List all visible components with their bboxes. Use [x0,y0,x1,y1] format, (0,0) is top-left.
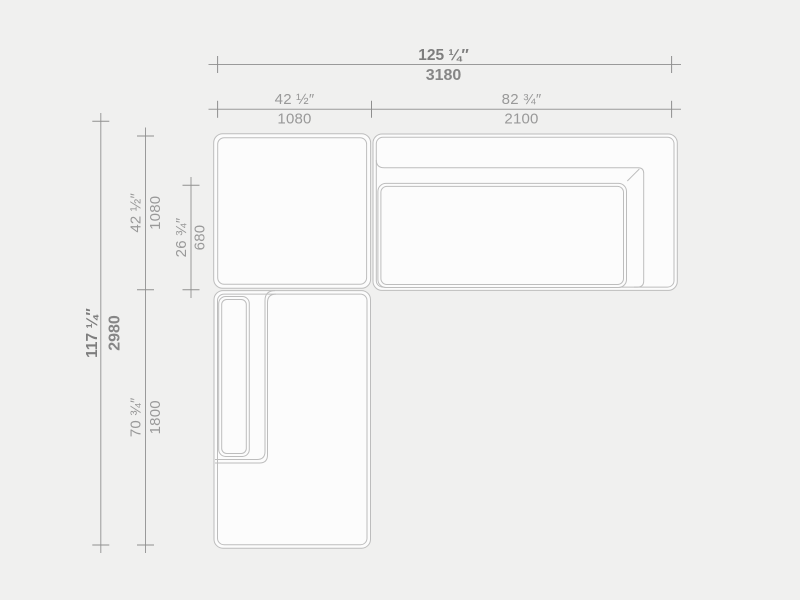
svg-text:42 ½″: 42 ½″ [275,91,315,108]
svg-text:3180: 3180 [426,67,462,84]
svg-text:1080: 1080 [277,111,311,128]
svg-text:2100: 2100 [504,111,538,128]
svg-text:680: 680 [192,225,209,251]
svg-text:125 ¼″: 125 ¼″ [418,47,469,64]
svg-text:117 ¼″: 117 ¼″ [84,308,101,358]
svg-text:1800: 1800 [147,400,164,434]
svg-text:26 ¾″: 26 ¾″ [173,217,190,257]
svg-text:42 ½″: 42 ½″ [128,192,145,232]
svg-text:70 ¾″: 70 ¾″ [128,397,145,437]
svg-text:1080: 1080 [147,196,164,230]
svg-text:2980: 2980 [107,315,124,351]
svg-text:82 ¾″: 82 ¾″ [502,91,542,108]
